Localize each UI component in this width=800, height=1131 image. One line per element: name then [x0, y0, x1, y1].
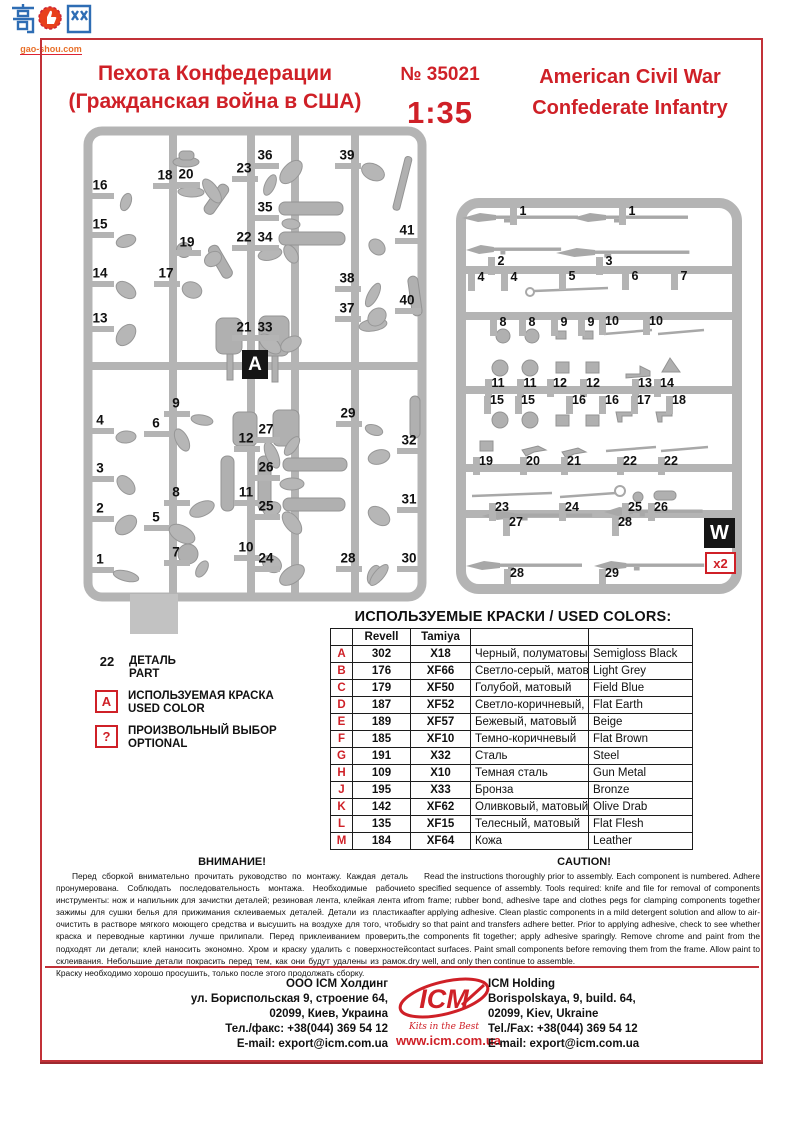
address-line: 02099, Kiev, Ukraine: [488, 1007, 728, 1022]
colors-table-header-cell: Revell: [353, 629, 411, 646]
color-name-en: Semigloss Black: [589, 646, 693, 663]
icm-logo-slogan: Kits in the Best: [396, 1022, 492, 1032]
tamiya-code: XF66: [411, 663, 471, 680]
part-number-label: 2: [498, 254, 505, 268]
part-number-label: 3: [606, 254, 613, 268]
colors-table-row: F185XF10Темно-коричневыйFlat Brown: [331, 731, 693, 748]
color-name-ru: Кожа: [471, 833, 589, 850]
legend-color-en: USED COLOR: [128, 703, 274, 716]
color-name-en: Olive Drab: [589, 799, 693, 816]
colors-table-header-cell: Tamiya: [411, 629, 471, 646]
caution-en-body: Read the instructions thoroughly prior t…: [408, 870, 760, 967]
part-number-label: 25: [628, 500, 642, 514]
color-letter: L: [331, 816, 353, 833]
sprue-a-tab: [130, 594, 178, 634]
color-name-ru: Светло-коричневый, мат.: [471, 697, 589, 714]
tamiya-code: X33: [411, 782, 471, 799]
sprue-w-tag: W: [704, 518, 735, 548]
color-name-en: Flat Brown: [589, 731, 693, 748]
colors-table-row: K142XF62Оливковый, матовыйOlive Drab: [331, 799, 693, 816]
part-number-label: 2: [96, 501, 104, 516]
address-line: Тел./факс: +38(044) 369 54 12: [80, 1022, 388, 1037]
color-letter: E: [331, 714, 353, 731]
revell-code: 135: [353, 816, 411, 833]
colors-table-row: J195X33БронзаBronze: [331, 782, 693, 799]
part-number-label: 12: [238, 431, 253, 446]
part-number-label: 28: [340, 551, 355, 566]
revell-code: 302: [353, 646, 411, 663]
part-number-label: 26: [258, 460, 273, 475]
revell-code: 142: [353, 799, 411, 816]
revell-code: 184: [353, 833, 411, 850]
legend-part-number: 22: [95, 655, 119, 668]
color-letter: G: [331, 748, 353, 765]
part-number-label: 22: [623, 454, 637, 468]
colors-table-row: E189XF57Бежевый, матовыйBeige: [331, 714, 693, 731]
address-line: Borispolskaya, 9, build. 64,: [488, 992, 728, 1007]
color-name-en: Flat Earth: [589, 697, 693, 714]
colors-table-header-cell: [331, 629, 353, 646]
colors-table-row: M184XF64КожаLeather: [331, 833, 693, 850]
colors-table-title: ИСПОЛЬЗУЕМЫЕ КРАСКИ / USED COLORS:: [330, 609, 696, 625]
part-number-label: 9: [561, 315, 568, 329]
sprue-a-tag: A: [242, 350, 268, 379]
part-number-label: 15: [490, 393, 504, 407]
part-number-label: 22: [664, 454, 678, 468]
sprue-w-diagram: W x2 11234456788991010111112121314151516…: [456, 198, 756, 598]
caution-ru-title: ВНИМАНИЕ!: [56, 856, 408, 868]
legend-optional-ru: ПРОИЗВОЛЬНЫЙ ВЫБОР: [128, 725, 277, 738]
part-number-label: 28: [618, 515, 632, 529]
part-number-label: 9: [588, 315, 595, 329]
revell-code: 185: [353, 731, 411, 748]
part-number-label: 22: [236, 230, 251, 245]
color-name-ru: Оливковый, матовый: [471, 799, 589, 816]
part-number-label: 38: [339, 271, 354, 286]
color-name-en: Field Blue: [589, 680, 693, 697]
revell-code: 179: [353, 680, 411, 697]
color-name-en: Flat Flesh: [589, 816, 693, 833]
part-number-label: 27: [509, 515, 523, 529]
tamiya-code: X32: [411, 748, 471, 765]
color-name-en: Beige: [589, 714, 693, 731]
part-number-label: 31: [401, 492, 416, 507]
color-name-ru: Темная сталь: [471, 765, 589, 782]
color-name-ru: Голубой, матовый: [471, 680, 589, 697]
part-number-label: 21: [236, 320, 251, 335]
caution-ru-body: Перед сборкой внимательно прочитать руко…: [56, 870, 408, 979]
part-number-label: 10: [238, 540, 253, 555]
tamiya-code: XF15: [411, 816, 471, 833]
part-number-label: 17: [637, 393, 651, 407]
revell-code: 191: [353, 748, 411, 765]
kit-title-russian: Пехота Конфедерации (Гражданская война в…: [52, 60, 378, 117]
color-name-en: Light Grey: [589, 663, 693, 680]
icm-website: www.icm.com.ua: [396, 1033, 492, 1048]
colors-table-row: G191X32СтальSteel: [331, 748, 693, 765]
part-number-label: 34: [257, 230, 272, 245]
color-name-ru: Телесный, матовый: [471, 816, 589, 833]
svg-text:ICM: ICM: [419, 984, 469, 1014]
part-number-label: 1: [520, 204, 527, 218]
part-number-label: 30: [401, 551, 416, 566]
part-number-label: 19: [179, 235, 194, 250]
color-name-ru: Черный, полуматовый: [471, 646, 589, 663]
address-line: ICM Holding: [488, 977, 728, 992]
sprue-a-diagram: A 16151413182019172322213635343339383741…: [83, 126, 427, 640]
part-number-label: 4: [511, 270, 518, 284]
color-letter: C: [331, 680, 353, 697]
address-line: Tel./Fax: +38(044) 369 54 12: [488, 1022, 728, 1037]
legend-part-ru: ДЕТАЛЬ: [129, 655, 176, 668]
tamiya-code: XF52: [411, 697, 471, 714]
part-number-label: 5: [569, 269, 576, 283]
part-number-label: 16: [572, 393, 586, 407]
part-number-label: 19: [479, 454, 493, 468]
tamiya-code: XF62: [411, 799, 471, 816]
color-letter: M: [331, 833, 353, 850]
color-name-en: Bronze: [589, 782, 693, 799]
footer-address-english: ICM HoldingBorispolskaya, 9, build. 64,0…: [488, 977, 728, 1052]
part-number-label: 21: [567, 454, 581, 468]
legend-optional: ? ПРОИЗВОЛЬНЫЙ ВЫБОР OPTIONAL: [95, 725, 330, 751]
part-number-label: 35: [257, 200, 272, 215]
colors-table-row: C179XF50Голубой, матовыйField Blue: [331, 680, 693, 697]
part-number-label: 24: [565, 500, 579, 514]
color-name-en: Steel: [589, 748, 693, 765]
color-letter: A: [331, 646, 353, 663]
address-line: ООО ICM Холдинг: [80, 977, 388, 992]
address-line: ул. Бориспольская 9, строение 64,: [80, 992, 388, 1007]
part-number-label: 29: [605, 566, 619, 580]
color-name-ru: Темно-коричневый: [471, 731, 589, 748]
part-number-label: 11: [523, 376, 536, 390]
part-number-label: 11: [491, 376, 504, 390]
kit-title-ru-line1: Пехота Конфедерации: [52, 60, 378, 88]
part-number-label: 20: [178, 167, 193, 182]
part-number-label: 12: [553, 376, 567, 390]
revell-code: 195: [353, 782, 411, 799]
part-number-label: 37: [339, 301, 354, 316]
part-number-label: 4: [96, 413, 104, 428]
colors-table-header-cell: [589, 629, 693, 646]
part-number-label: 7: [681, 269, 688, 283]
part-number-label: 13: [638, 376, 652, 390]
kit-number: № 35021: [392, 62, 488, 88]
part-number-label: 25: [258, 499, 273, 514]
caution-english: CAUTION! Read the instructions thoroughl…: [408, 856, 760, 967]
part-number-label: 12: [586, 376, 600, 390]
colors-table-row: D187XF52Светло-коричневый, мат.Flat Eart…: [331, 697, 693, 714]
revell-code: 109: [353, 765, 411, 782]
colors-section: ИСПОЛЬЗУЕМЫЕ КРАСКИ / USED COLORS: Revel…: [330, 609, 696, 850]
part-number-label: 8: [172, 485, 180, 500]
part-number-label: 20: [526, 454, 540, 468]
colors-table-header-cell: [471, 629, 589, 646]
part-number-label: 23: [236, 161, 251, 176]
tamiya-code: XF10: [411, 731, 471, 748]
footer-address-russian: ООО ICM Холдингул. Бориспольская 9, стро…: [80, 977, 388, 1052]
part-number-label: 28: [510, 566, 524, 580]
part-number-label: 8: [529, 315, 536, 329]
part-number-label: 24: [258, 551, 273, 566]
part-number-label: 39: [339, 148, 354, 163]
part-number-label: 18: [157, 168, 172, 183]
part-number-label: 41: [399, 223, 414, 238]
part-number-label: 6: [152, 416, 160, 431]
legend-part-en: PART: [129, 668, 176, 681]
color-letter: B: [331, 663, 353, 680]
color-name-ru: Светло-серый, матовый: [471, 663, 589, 680]
sprue-a-frame: [83, 126, 427, 640]
part-number-label: 16: [92, 178, 107, 193]
legend-color-ru: ИСПОЛЬЗУЕМАЯ КРАСКА: [128, 690, 274, 703]
icm-logo-block: ICM Kits in the Best www.icm.com.ua: [396, 977, 492, 1048]
part-number-label: 27: [258, 422, 273, 437]
sprue-w-quantity: x2: [705, 552, 736, 574]
legend-color: A ИСПОЛЬЗУЕМАЯ КРАСКА USED COLOR: [95, 690, 330, 716]
part-number-label: 16: [605, 393, 619, 407]
legend-color-symbol: A: [95, 690, 118, 713]
colors-table-row: H109X10Темная стальGun Metal: [331, 765, 693, 782]
part-number-label: 9: [172, 396, 180, 411]
tamiya-code: XF57: [411, 714, 471, 731]
legend-optional-en: OPTIONAL: [128, 738, 277, 751]
legend: 22 ДЕТАЛЬ PART A ИСПОЛЬЗУЕМАЯ КРАСКА USE…: [95, 655, 330, 760]
tamiya-code: X18: [411, 646, 471, 663]
caution-russian: ВНИМАНИЕ! Перед сборкой внимательно проч…: [56, 856, 408, 979]
color-letter: H: [331, 765, 353, 782]
part-number-label: 5: [152, 510, 160, 525]
color-letter: J: [331, 782, 353, 799]
part-number-label: 6: [632, 269, 639, 283]
part-number-label: 15: [521, 393, 535, 407]
part-number-label: 40: [399, 293, 414, 308]
colors-table-row: B176XF66Светло-серый, матовыйLight Grey: [331, 663, 693, 680]
part-number-label: 14: [92, 266, 107, 281]
part-number-label: 1: [629, 204, 636, 218]
tamiya-code: XF50: [411, 680, 471, 697]
part-number-label: 15: [92, 217, 107, 232]
part-number-label: 14: [660, 376, 674, 390]
kit-title-english: American Civil War Confederate Infantry: [528, 62, 732, 124]
colors-table-row: A302X18Черный, полуматовыйSemigloss Blac…: [331, 646, 693, 663]
part-number-label: 29: [340, 406, 355, 421]
watermark-logo-icon: [10, 4, 92, 34]
part-number-label: 13: [92, 311, 107, 326]
part-number-label: 4: [478, 270, 485, 284]
color-letter: F: [331, 731, 353, 748]
address-line: E-mail: export@icm.com.ua: [488, 1037, 728, 1052]
address-line: 02099, Киев, Украина: [80, 1007, 388, 1022]
color-name-ru: Бежевый, матовый: [471, 714, 589, 731]
color-letter: D: [331, 697, 353, 714]
color-letter: K: [331, 799, 353, 816]
color-name-en: Leather: [589, 833, 693, 850]
tamiya-code: X10: [411, 765, 471, 782]
color-name-ru: Сталь: [471, 748, 589, 765]
colors-table: RevellTamiyaA302X18Черный, полуматовыйSe…: [330, 628, 693, 850]
color-name-en: Gun Metal: [589, 765, 693, 782]
kit-title-ru-line2: (Гражданская война в США): [52, 88, 378, 116]
part-number-label: 7: [172, 545, 180, 560]
part-number-label: 18: [672, 393, 686, 407]
part-number-label: 33: [257, 320, 272, 335]
legend-optional-symbol: ?: [95, 725, 118, 748]
part-number-label: 23: [495, 500, 509, 514]
part-number-label: 10: [649, 314, 663, 328]
part-number-label: 11: [239, 485, 253, 500]
part-number-label: 26: [654, 500, 668, 514]
caution-en-title: CAUTION!: [408, 856, 760, 868]
icm-logo-icon: ICM: [396, 977, 492, 1021]
part-number-label: 10: [605, 314, 619, 328]
part-number-label: 36: [257, 148, 272, 163]
revell-code: 176: [353, 663, 411, 680]
part-number-label: 1: [96, 552, 104, 567]
part-number-label: 17: [158, 266, 173, 281]
address-line: E-mail: export@icm.com.ua: [80, 1037, 388, 1052]
part-number-label: 8: [500, 315, 507, 329]
revell-code: 189: [353, 714, 411, 731]
part-number-label: 32: [401, 433, 416, 448]
legend-part: 22 ДЕТАЛЬ PART: [95, 655, 330, 681]
revell-code: 187: [353, 697, 411, 714]
colors-table-header-row: RevellTamiya: [331, 629, 693, 646]
color-name-ru: Бронза: [471, 782, 589, 799]
part-number-label: 3: [96, 461, 104, 476]
tamiya-code: XF64: [411, 833, 471, 850]
instruction-sheet-page: gao-shou.com Пехота Конфедерации (Гражда…: [0, 0, 800, 1131]
colors-table-row: L135XF15Телесный, матовыйFlat Flesh: [331, 816, 693, 833]
